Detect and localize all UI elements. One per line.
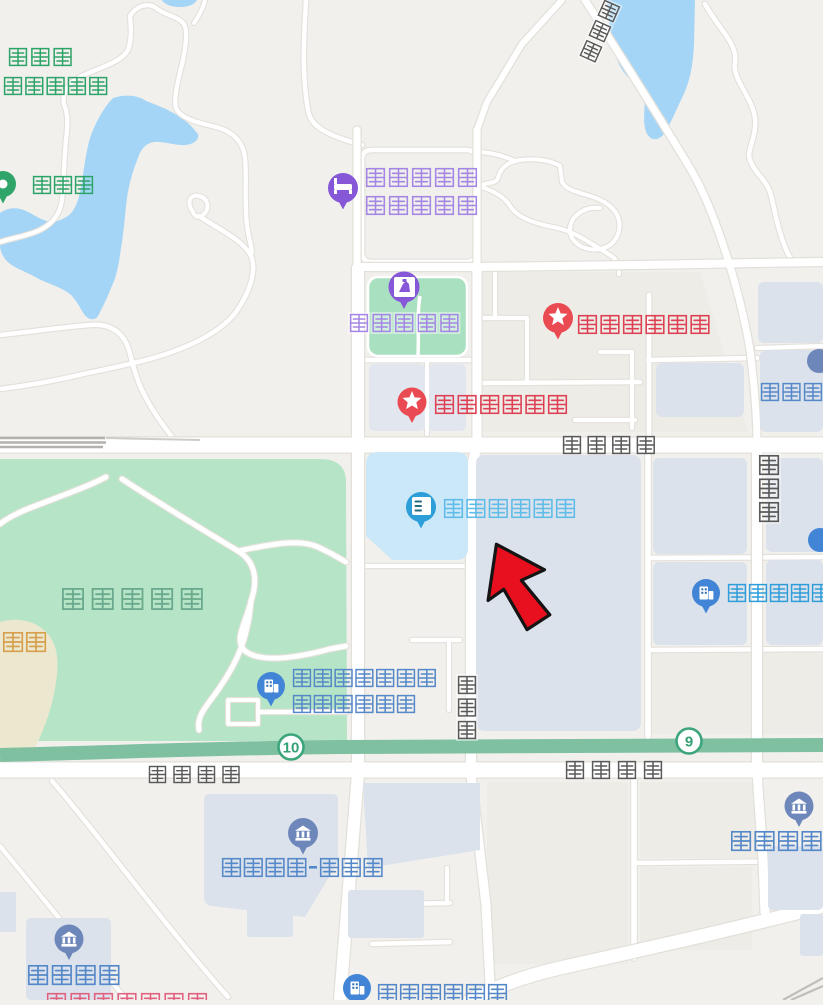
svg-text:10: 10 bbox=[283, 740, 300, 757]
svg-text:9: 9 bbox=[685, 734, 693, 751]
